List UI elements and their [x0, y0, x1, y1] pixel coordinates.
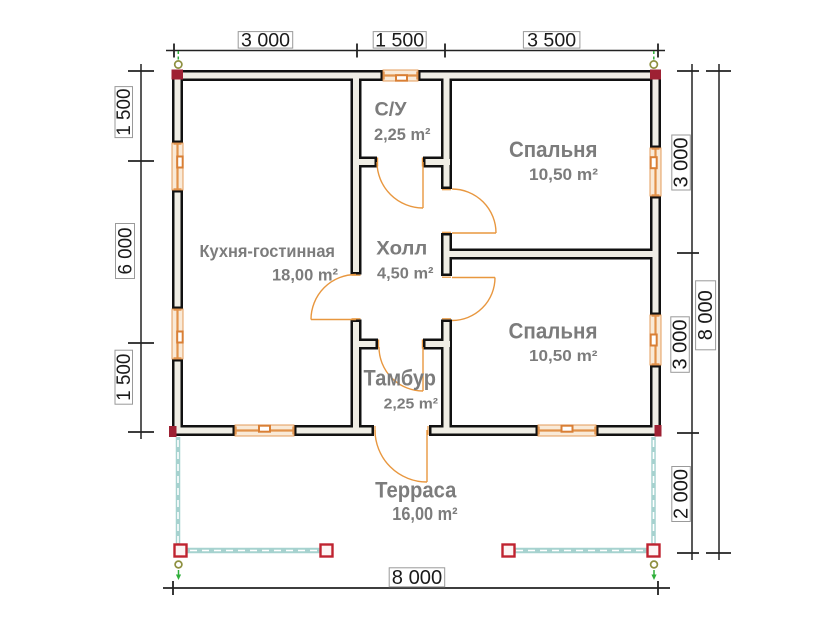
svg-text:Холл: Холл: [376, 239, 427, 260]
svg-text:16,00 m²: 16,00 m²: [392, 504, 457, 524]
svg-text:Спальня: Спальня: [509, 137, 598, 162]
svg-text:3 000: 3 000: [670, 320, 692, 370]
svg-text:2,25 m²: 2,25 m²: [384, 396, 438, 413]
svg-text:6 000: 6 000: [116, 228, 137, 275]
svg-text:1 500: 1 500: [375, 30, 424, 51]
svg-text:8 000: 8 000: [695, 290, 717, 340]
svg-text:Спальня: Спальня: [509, 319, 598, 344]
svg-text:3 000: 3 000: [241, 30, 290, 51]
svg-text:2 000: 2 000: [671, 469, 693, 519]
svg-text:2,25 m²: 2,25 m²: [374, 125, 431, 144]
svg-text:Тамбур: Тамбур: [364, 366, 437, 391]
svg-text:18,00 m²: 18,00 m²: [272, 266, 338, 284]
svg-text:3 000: 3 000: [671, 138, 693, 188]
svg-text:1 500: 1 500: [114, 89, 135, 136]
svg-text:4,50 m²: 4,50 m²: [377, 266, 434, 283]
svg-text:Терраса: Терраса: [375, 478, 457, 503]
svg-text:8 000: 8 000: [392, 566, 443, 589]
svg-text:Кухня-гостинная: Кухня-гостинная: [200, 241, 336, 261]
svg-text:1 500: 1 500: [114, 354, 135, 401]
svg-text:10,50 m²: 10,50 m²: [529, 166, 599, 184]
svg-text:С/У: С/У: [375, 99, 408, 121]
svg-text:10,50 m²: 10,50 m²: [529, 348, 598, 365]
svg-text:3 500: 3 500: [527, 30, 576, 51]
